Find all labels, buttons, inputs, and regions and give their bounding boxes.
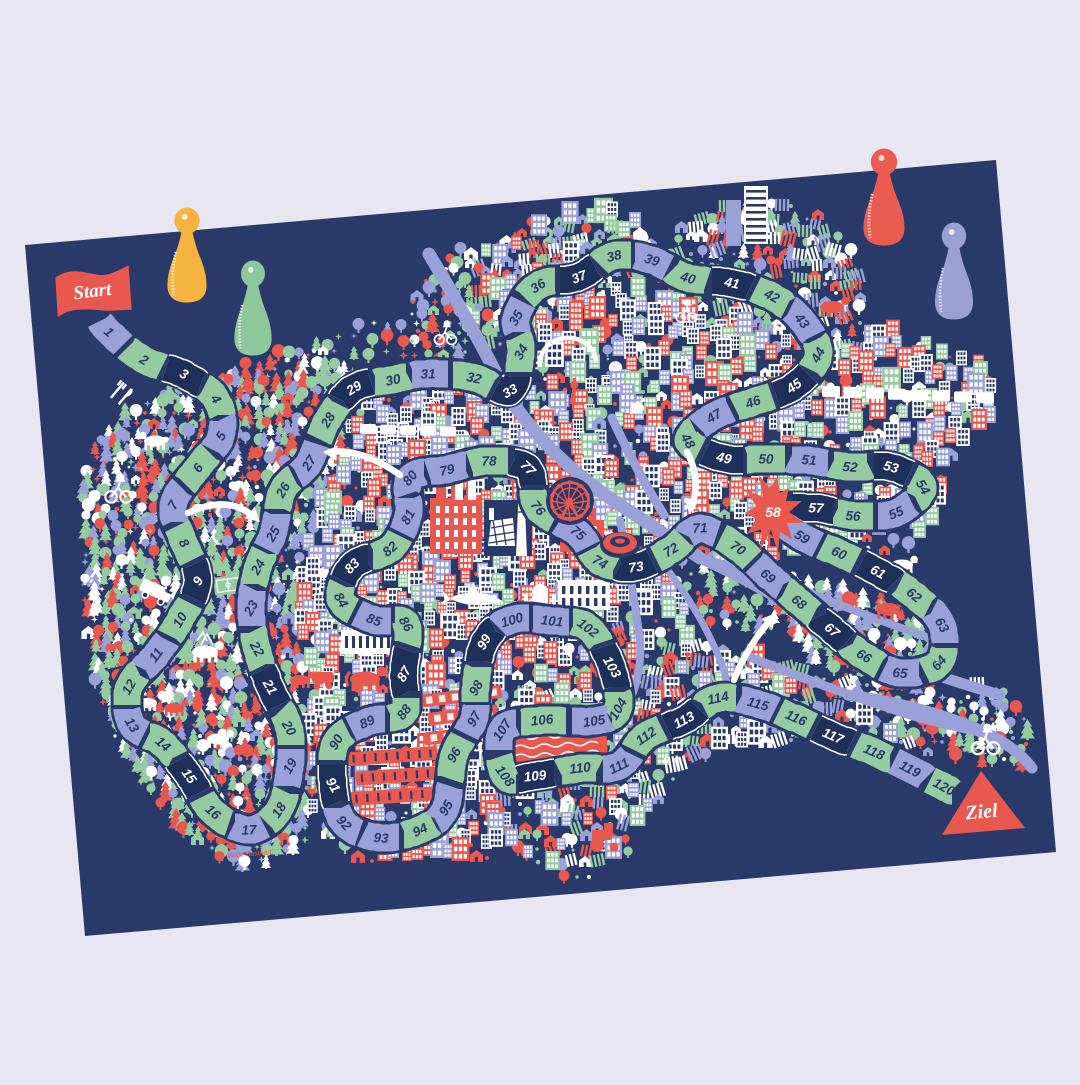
svg-text:110: 110 — [568, 759, 592, 777]
svg-text:Ziel: Ziel — [963, 800, 998, 825]
svg-text:73: 73 — [627, 558, 645, 575]
svg-text:57: 57 — [808, 500, 825, 516]
svg-text:106: 106 — [530, 711, 554, 728]
svg-text:31: 31 — [420, 366, 435, 381]
svg-text:78: 78 — [481, 453, 497, 468]
svg-text:71: 71 — [692, 520, 708, 536]
svg-text:50: 50 — [758, 451, 774, 466]
svg-text:109: 109 — [523, 767, 547, 784]
svg-text:17: 17 — [241, 822, 258, 838]
svg-text:93: 93 — [373, 830, 390, 846]
svg-text:52: 52 — [842, 459, 859, 475]
svg-text:101: 101 — [540, 612, 564, 629]
svg-text:51: 51 — [801, 452, 817, 468]
svg-text:56: 56 — [845, 508, 862, 524]
svg-text:65: 65 — [892, 665, 909, 681]
svg-text:58: 58 — [765, 504, 781, 520]
